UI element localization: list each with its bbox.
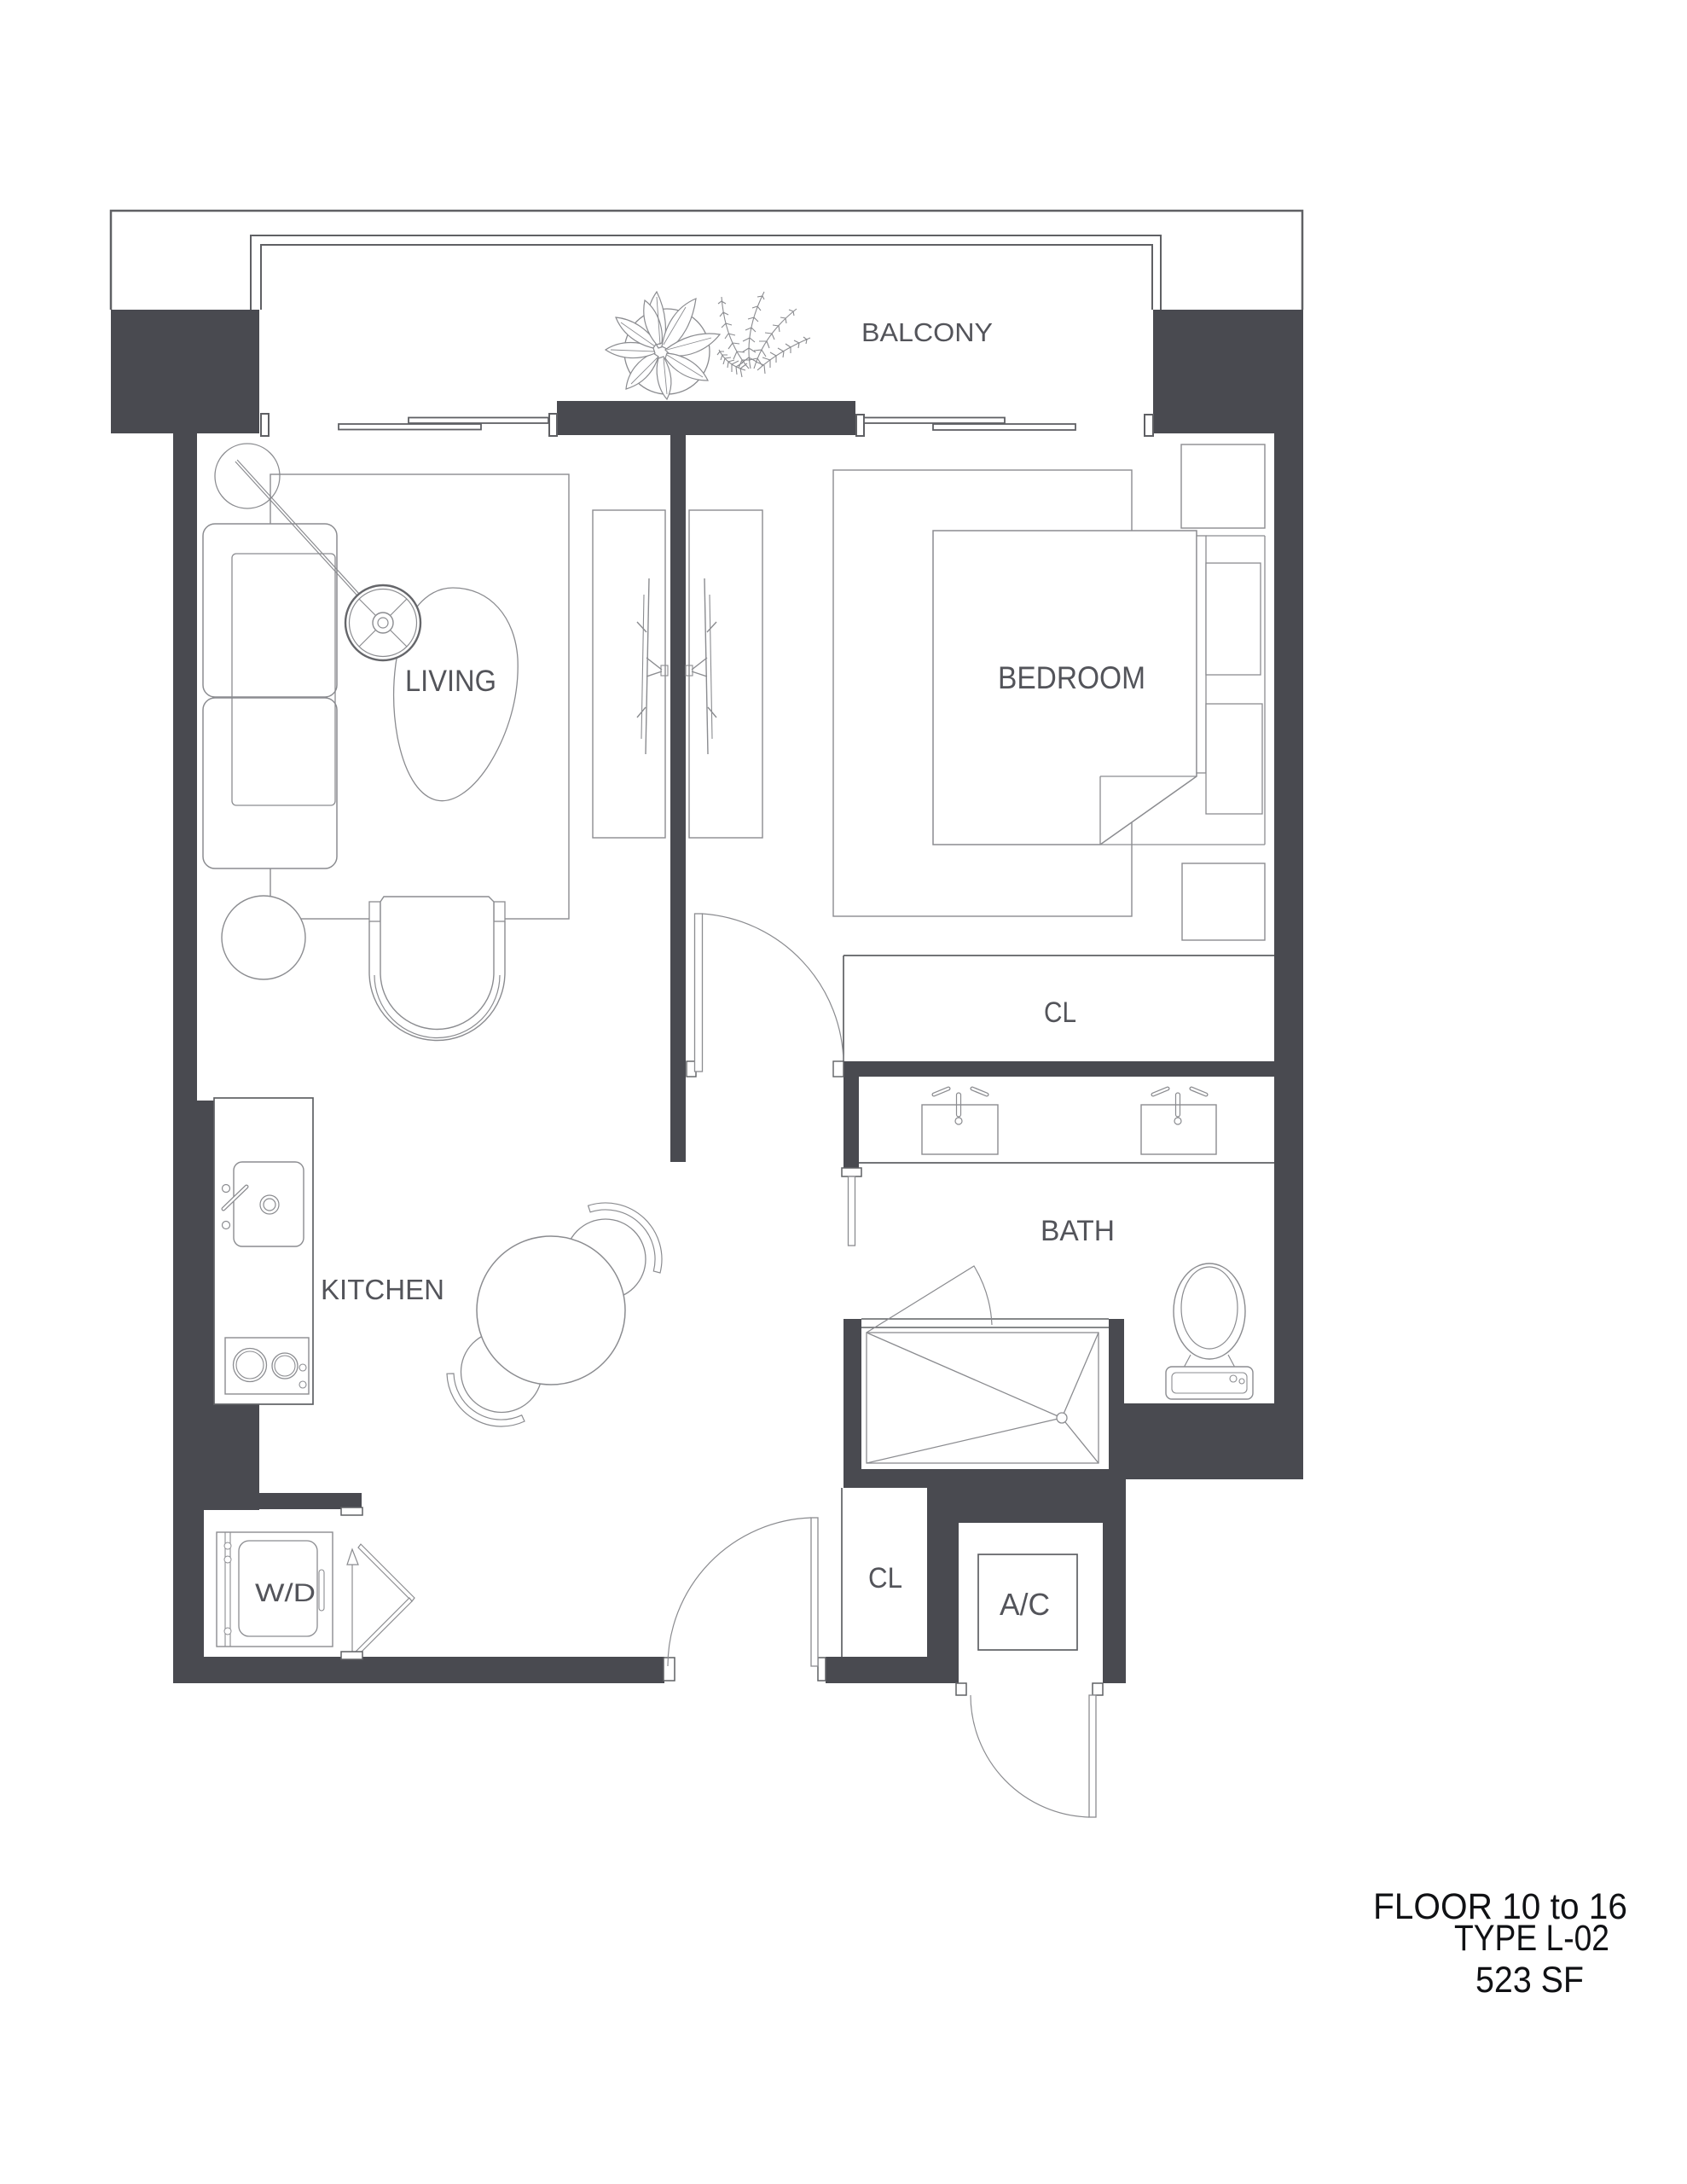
- svg-text:BEDROOM: BEDROOM: [998, 660, 1145, 695]
- svg-text:TYPE L-02: TYPE L-02: [1454, 1918, 1609, 1959]
- svg-text:523 SF: 523 SF: [1475, 1960, 1584, 2001]
- svg-text:A/C: A/C: [1000, 1587, 1050, 1622]
- svg-text:KITCHEN: KITCHEN: [321, 1274, 444, 1305]
- svg-text:LIVING: LIVING: [405, 665, 496, 698]
- svg-text:BATH: BATH: [1041, 1215, 1115, 1247]
- svg-text:CL: CL: [1044, 996, 1076, 1029]
- svg-text:BALCONY: BALCONY: [861, 317, 993, 347]
- svg-text:CL: CL: [868, 1562, 902, 1594]
- svg-text:W/D: W/D: [255, 1579, 316, 1607]
